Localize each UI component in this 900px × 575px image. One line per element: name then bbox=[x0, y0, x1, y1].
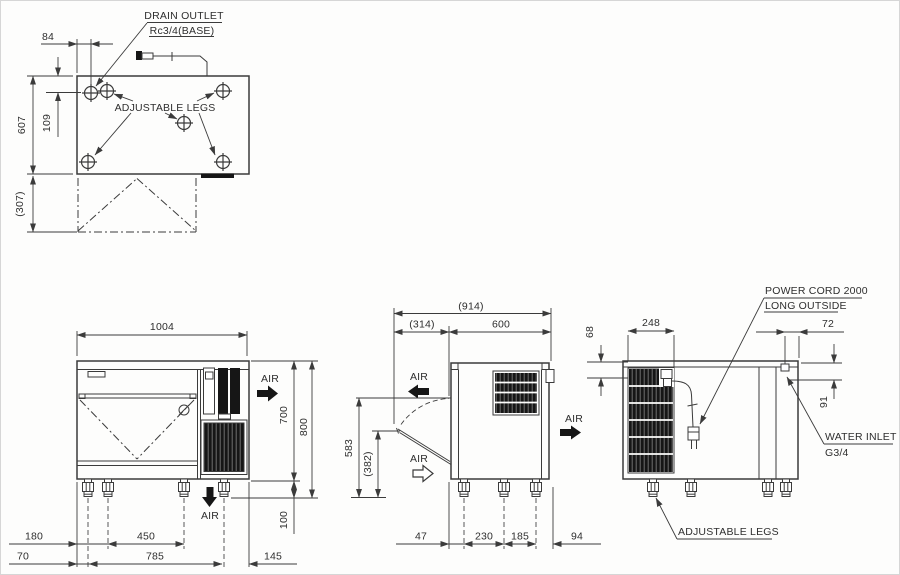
air-in-front: AIR bbox=[410, 453, 433, 482]
top-plan-view: DRAIN OUTLET Rc3/4(BASE) ADJUSTABLE LEGS bbox=[14, 10, 249, 232]
nameplate-badge bbox=[88, 372, 105, 378]
air-arrow-right-icon bbox=[560, 426, 581, 440]
adjustable-leg-symbol bbox=[214, 153, 232, 171]
dim-label: (314) bbox=[409, 319, 435, 331]
door-swing-projection bbox=[78, 178, 196, 232]
adjustable-leg-symbol bbox=[79, 153, 97, 171]
dim-label: 180 bbox=[25, 531, 43, 543]
adjustable-leg-symbol bbox=[214, 82, 232, 100]
dim-583-382: 583 (382) bbox=[343, 398, 451, 498]
dim-label: 145 bbox=[264, 551, 282, 563]
dim-label: (914) bbox=[458, 301, 484, 313]
side-grille bbox=[493, 371, 539, 415]
air-arrow-right-icon bbox=[257, 386, 278, 402]
vent-slot bbox=[218, 368, 228, 414]
air-label: AIR bbox=[261, 373, 279, 385]
dim-label: 785 bbox=[146, 551, 164, 563]
dim-label: 600 bbox=[492, 319, 510, 331]
adjustable-leg bbox=[83, 479, 94, 497]
air-arrow-down-icon bbox=[202, 487, 217, 507]
dim-label: 607 bbox=[16, 116, 28, 134]
dim-label: 800 bbox=[298, 418, 310, 436]
adjustable-leg bbox=[781, 479, 792, 497]
front-view: 1004 bbox=[9, 321, 318, 567]
adjustable-leg bbox=[219, 479, 230, 497]
side-view: (914) (314) 600 AIR bbox=[343, 301, 601, 550]
power-plug bbox=[688, 427, 699, 440]
air-out-side: AIR bbox=[257, 373, 279, 402]
dim-label: 185 bbox=[511, 531, 529, 543]
dim-label: 68 bbox=[584, 326, 596, 338]
leader-arrow-icon bbox=[656, 498, 677, 539]
drain-outlet-size-label: Rc3/4(BASE) bbox=[150, 25, 215, 37]
dim-109: 109 bbox=[41, 57, 81, 137]
dim-label: (307) bbox=[14, 191, 26, 217]
dim-label: 1004 bbox=[150, 321, 174, 333]
cord-connector-box bbox=[661, 370, 672, 379]
dim-label: 583 bbox=[343, 439, 355, 457]
dim-label: 84 bbox=[42, 31, 54, 43]
vent-slot bbox=[230, 368, 240, 414]
door-swing-arc bbox=[401, 399, 449, 425]
top-view-rear-step bbox=[201, 174, 234, 179]
dim-248: 248 bbox=[628, 317, 674, 367]
drain-outlet-callout: DRAIN OUTLET Rc3/4(BASE) bbox=[96, 10, 224, 86]
dim-label: (382) bbox=[362, 451, 374, 477]
dim-label: 100 bbox=[278, 511, 290, 529]
adjustable-leg-symbol bbox=[82, 84, 100, 102]
adjustable-leg-symbol bbox=[175, 114, 193, 132]
dim-307: (307) bbox=[14, 176, 77, 232]
leader-arrow-icon bbox=[787, 377, 824, 444]
dim-label: 47 bbox=[415, 531, 427, 543]
side-bottom-dims: 47 230 185 94 bbox=[396, 482, 601, 549]
technical-drawing-sheet: DRAIN OUTLET Rc3/4(BASE) ADJUSTABLE LEGS bbox=[0, 0, 900, 575]
water-inlet-callout: WATER INLET G3/4 bbox=[787, 377, 897, 459]
power-cord bbox=[672, 381, 699, 449]
dim-label: 700 bbox=[278, 406, 290, 424]
dim-label: 109 bbox=[41, 114, 53, 132]
air-in-top: AIR bbox=[408, 371, 429, 399]
front-bottom-dims: 180 450 70 785 145 bbox=[9, 482, 297, 567]
air-grille bbox=[204, 423, 244, 472]
water-inlet-size-label: G3/4 bbox=[825, 447, 849, 459]
power-cord-label: POWER CORD 2000 bbox=[765, 285, 868, 297]
adjustable-legs-callout: ADJUSTABLE LEGS bbox=[656, 498, 779, 539]
rear-fitting bbox=[546, 370, 554, 383]
condenser-grille bbox=[628, 368, 674, 473]
dim-1004: 1004 bbox=[77, 321, 247, 356]
dim-label: 94 bbox=[571, 531, 583, 543]
adjustable-leg bbox=[103, 479, 114, 497]
rear-view: 68 248 72 bbox=[584, 285, 897, 539]
adjustable-leg bbox=[648, 479, 659, 497]
adjustable-leg bbox=[179, 479, 190, 497]
adjustable-leg-symbol bbox=[98, 82, 116, 100]
dim-label: 248 bbox=[642, 317, 660, 329]
power-cord-label2: LONG OUTSIDE bbox=[765, 300, 847, 312]
dim-label: 91 bbox=[818, 396, 830, 408]
dim-label: 230 bbox=[475, 531, 493, 543]
air-out-rear: AIR bbox=[560, 413, 583, 440]
dim-label: 70 bbox=[17, 551, 29, 563]
adjustable-leg bbox=[459, 479, 470, 497]
air-arrow-left-icon bbox=[408, 385, 429, 399]
air-label: AIR bbox=[410, 453, 428, 465]
adjustable-leg bbox=[531, 479, 542, 497]
air-label: AIR bbox=[201, 510, 219, 522]
adjustable-legs-callout: ADJUSTABLE LEGS bbox=[95, 93, 215, 155]
power-cord-top-symbol bbox=[136, 51, 207, 76]
adjustable-leg bbox=[763, 479, 774, 497]
dim-label: 450 bbox=[137, 531, 155, 543]
front-door bbox=[77, 394, 198, 466]
drain-outlet-label: DRAIN OUTLET bbox=[144, 10, 224, 22]
water-inlet-label: WATER INLET bbox=[825, 431, 897, 443]
ice-machine-dimension-drawing: DRAIN OUTLET Rc3/4(BASE) ADJUSTABLE LEGS bbox=[1, 1, 899, 574]
adjustable-legs-label: ADJUSTABLE LEGS bbox=[115, 102, 216, 114]
air-label: AIR bbox=[410, 371, 428, 383]
water-inlet-fitting bbox=[781, 364, 789, 371]
air-arrow-outline-right-icon bbox=[413, 466, 433, 482]
dim-label: 72 bbox=[822, 318, 834, 330]
front-machine-section bbox=[201, 368, 247, 475]
air-label: AIR bbox=[565, 413, 583, 425]
adjustable-legs-label: ADJUSTABLE LEGS bbox=[678, 526, 779, 538]
adjustable-leg bbox=[686, 479, 697, 497]
adjustable-leg bbox=[499, 479, 510, 497]
power-cord-callout: POWER CORD 2000 LONG OUTSIDE bbox=[700, 285, 868, 424]
air-out-bottom: AIR bbox=[201, 487, 219, 522]
